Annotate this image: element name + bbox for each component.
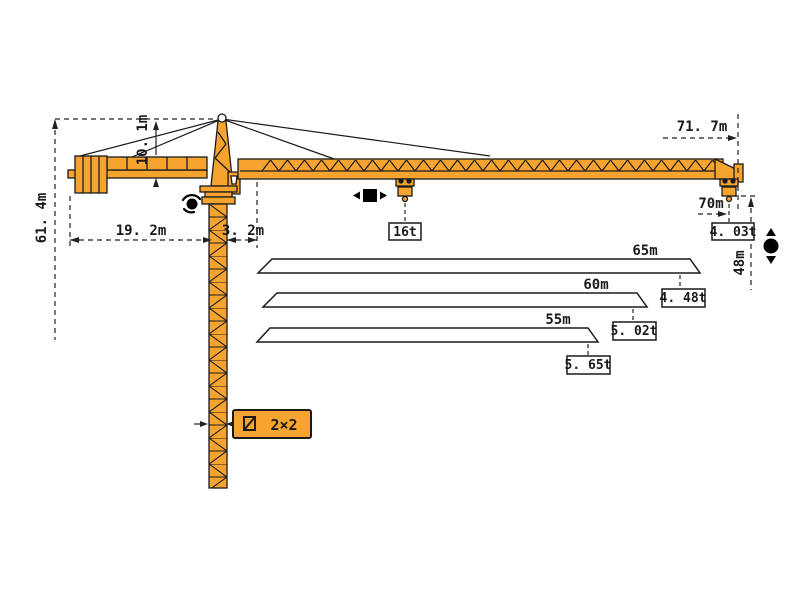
arrow-right-jib-tip-radius bbox=[728, 135, 737, 141]
label-lifting-height: 48m bbox=[732, 250, 748, 275]
counter-jib-platform bbox=[107, 157, 207, 170]
turntable bbox=[200, 186, 237, 192]
label-tip-load-70m: 4. 03t bbox=[710, 225, 757, 240]
tie-rod-right-short bbox=[222, 119, 337, 160]
hook-block bbox=[398, 187, 412, 196]
label-jib-65m: 65m bbox=[632, 243, 657, 259]
hook-block bbox=[722, 187, 736, 196]
diagram-canvas: 61. 4m 10. 1m 19. 2m 3. 2m 71. 7m 70m 48… bbox=[0, 0, 800, 600]
label-jib-60m: 60m bbox=[583, 277, 608, 293]
hook bbox=[403, 197, 408, 202]
label-working-radius: 70m bbox=[698, 196, 723, 212]
label-load-65m: 4. 48t bbox=[660, 291, 707, 306]
label-mast-section: 2×2 bbox=[270, 416, 297, 434]
trolley-wheel bbox=[731, 179, 735, 183]
jib-bar-65m bbox=[258, 259, 700, 273]
jib-bar-55m bbox=[257, 328, 598, 342]
cab-window bbox=[231, 176, 237, 184]
jib-lattice bbox=[262, 160, 715, 171]
mast bbox=[209, 204, 227, 488]
slewing-unit bbox=[200, 186, 237, 204]
tower-collar bbox=[202, 197, 235, 204]
label-overall-height: 61. 4m bbox=[34, 193, 50, 244]
label-jib-tip-radius: 71. 7m bbox=[677, 119, 728, 135]
hook-up-down-icon bbox=[764, 228, 779, 264]
arrow-up-head-height bbox=[153, 121, 159, 130]
trolley-travel-arrows-icon bbox=[353, 189, 387, 202]
label-load-55m: 5. 65t bbox=[565, 358, 612, 373]
trolley-wheel bbox=[399, 179, 403, 183]
slew-rotation-icon bbox=[183, 195, 200, 212]
trolley-wheel bbox=[723, 179, 727, 183]
tie-rod-right-long bbox=[222, 119, 490, 156]
arrow-up-overall bbox=[52, 119, 58, 129]
arrow-up-lifting-height bbox=[748, 197, 754, 207]
crane-diagram: 61. 4m 10. 1m 19. 2m 3. 2m 71. 7m 70m 48… bbox=[0, 0, 800, 600]
label-max-capacity: 16t bbox=[393, 225, 416, 240]
jib bbox=[238, 159, 743, 182]
arrow-right-at-mast bbox=[200, 421, 208, 427]
tower-head bbox=[211, 114, 240, 194]
mast-lattice bbox=[209, 204, 227, 488]
label-jib-55m: 55m bbox=[545, 312, 570, 328]
trolley-mid bbox=[396, 179, 414, 202]
label-tower-head-height: 10. 1m bbox=[135, 115, 151, 166]
label-jib-root-offset: 3. 2m bbox=[222, 223, 264, 239]
jib-bar-60m bbox=[263, 293, 647, 307]
label-counter-jib-radius: 19. 2m bbox=[116, 223, 167, 239]
motion-icons bbox=[183, 189, 779, 264]
trolley-wheel bbox=[407, 179, 411, 183]
apex-pulley bbox=[218, 114, 226, 122]
slew-ring bbox=[205, 192, 232, 197]
label-load-60m: 5. 02t bbox=[611, 324, 658, 339]
tie-rod-left-long bbox=[80, 119, 222, 156]
hook bbox=[727, 197, 732, 202]
arrow-left-counter-jib bbox=[70, 237, 79, 243]
arrow-beam-head-height bbox=[153, 178, 159, 187]
